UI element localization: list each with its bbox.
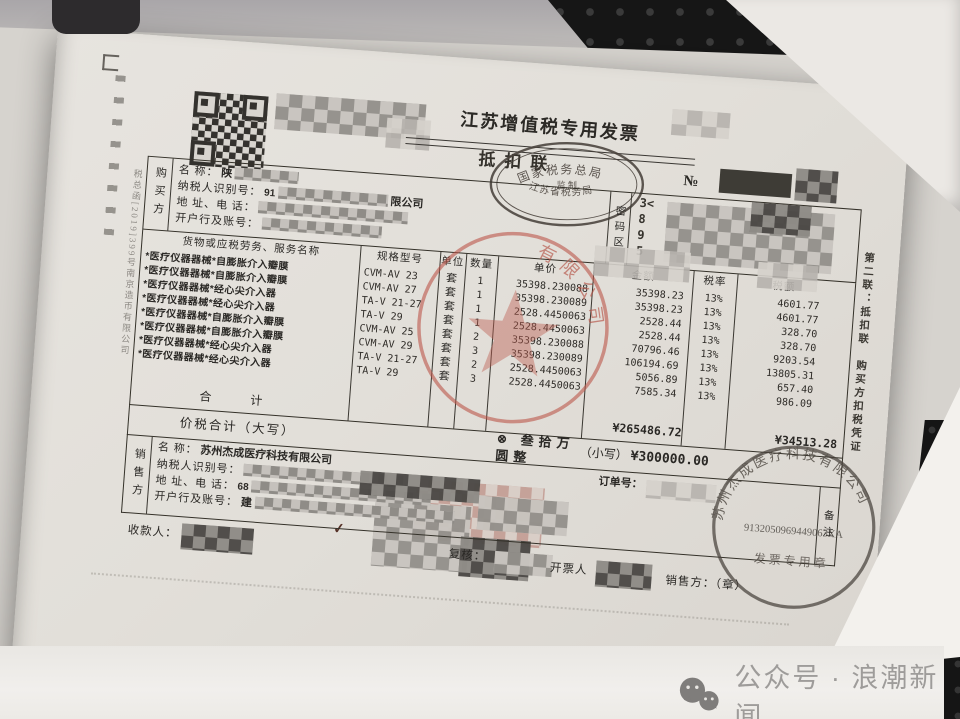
seller-bank-value: 建 [240, 497, 252, 510]
password-line: 3< [639, 196, 655, 212]
photo-scene: 税总函[2019]399号南京造币有限公司 第二联：抵扣联 购买方扣税凭证 江苏… [0, 0, 960, 719]
reviewer-label: 复核： [448, 547, 486, 564]
seller-stamp-credit-code: 9132050969449063XA [744, 522, 844, 540]
star-icon [465, 286, 561, 378]
seller-stamp-type: 发票专用章 [753, 550, 829, 571]
order-number-label: 订单号： [598, 475, 643, 492]
wechat-icon [676, 675, 724, 715]
censored-block [385, 118, 431, 151]
censored-block [671, 109, 731, 139]
red-company-stamp: 有限公司 [406, 220, 620, 434]
small-write-value: ¥300000.00 [630, 449, 709, 470]
censored-payee [180, 523, 254, 554]
buyer-name-suffix: 限公司 [390, 196, 424, 210]
buyer-name-value: 陕 [221, 167, 233, 180]
drawer-label: 开票人 [549, 561, 587, 578]
small-write-label: （小写） [579, 445, 628, 463]
censored-drawer [595, 561, 653, 591]
seller-name-label: 名 称： [158, 441, 199, 456]
item-rate: 13% [684, 389, 729, 405]
col-header-rate: 税率 [692, 274, 737, 290]
seller-company-stamp: 苏州杰成医疗科技有限公司 9132050969449063XA 发票专用章 [697, 431, 890, 624]
serial-number-prefix: № [683, 172, 699, 192]
censored-buyer-name [235, 167, 300, 184]
censored-reviewer [494, 551, 553, 577]
qr-code [189, 91, 268, 170]
censored-invoice-number [719, 169, 793, 198]
buyer-taxid-value: 91 [264, 188, 276, 200]
svg-text:苏州杰成医疗科技有限公司: 苏州杰成医疗科技有限公司 [710, 440, 876, 533]
watermark-text: 公众号 · 浪潮新闻 [734, 656, 960, 719]
censored-block [477, 496, 569, 537]
password-line: 8 [638, 212, 646, 228]
buyer-name-label: 名 称： [178, 164, 219, 179]
censored-block [750, 202, 812, 236]
password-line: 9 [637, 228, 645, 244]
dark-object-top-left [52, 0, 140, 34]
seller-stamp-company: 苏州杰成医疗科技有限公司 [710, 440, 876, 533]
seller-address-value: 68 [237, 481, 249, 493]
payee-label: 收款人： [127, 523, 178, 541]
vat-invoice-form: 税总函[2019]399号南京造币有限公司 第二联：抵扣联 购买方扣税凭证 江苏… [118, 60, 869, 602]
news-watermark: 公众号 · 浪潮新闻 [676, 656, 960, 719]
corner-registration-mark [102, 54, 119, 71]
censored-block [757, 262, 819, 292]
censored-block [794, 168, 838, 203]
